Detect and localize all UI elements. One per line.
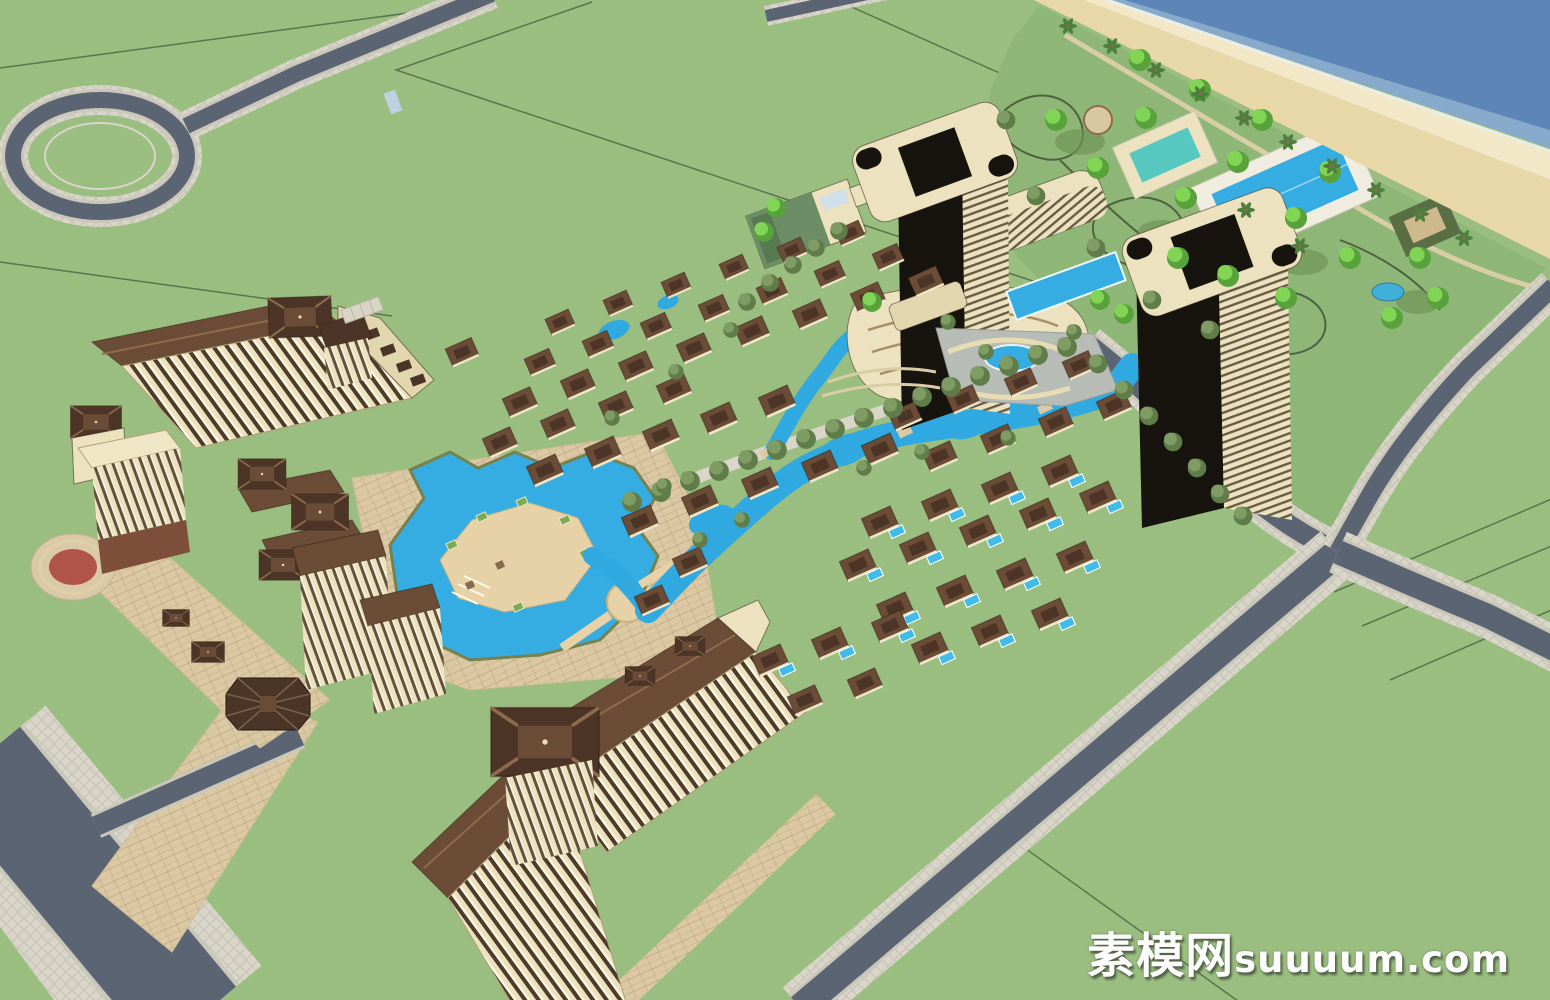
watermark: 素模网suuuum.com	[1087, 932, 1510, 980]
tree	[807, 239, 825, 257]
tree	[1129, 49, 1151, 71]
resort-masterplan-render: 素模网suuuum.com	[0, 0, 1550, 1000]
tree	[692, 532, 707, 547]
tree	[1087, 157, 1109, 179]
tree	[1115, 381, 1134, 400]
tree	[825, 419, 845, 439]
tree	[1251, 109, 1273, 131]
tree	[941, 377, 961, 397]
tree	[1089, 355, 1108, 374]
tree	[970, 366, 990, 386]
tree	[1135, 107, 1157, 129]
gate-pavilion	[192, 642, 225, 663]
tree	[622, 492, 642, 512]
tree	[1211, 485, 1230, 504]
tree	[784, 256, 802, 274]
tree	[1027, 187, 1046, 206]
tree	[862, 292, 882, 312]
tree	[738, 450, 758, 470]
tree	[668, 364, 683, 379]
garden-pavilion	[1084, 106, 1112, 134]
tree	[709, 461, 729, 481]
tree	[1188, 459, 1207, 478]
tree	[723, 322, 738, 337]
gate-pavilion	[163, 609, 190, 626]
tree	[1164, 433, 1183, 452]
tree	[680, 471, 700, 491]
tower-roof	[238, 459, 286, 489]
tree	[1285, 207, 1307, 229]
tree	[1167, 247, 1189, 269]
tree	[856, 460, 871, 475]
tree	[978, 344, 993, 359]
tree	[1140, 407, 1159, 426]
tree	[656, 478, 671, 493]
tree	[796, 429, 816, 449]
tree	[754, 222, 774, 242]
wing-cap	[675, 637, 705, 656]
tree	[914, 444, 929, 459]
watermark-domain: suuuum.com	[1234, 941, 1510, 978]
tree	[604, 410, 619, 425]
tree	[1045, 109, 1067, 131]
wing-cap	[625, 667, 655, 686]
tree	[761, 274, 779, 292]
tree	[1339, 247, 1361, 269]
render-canvas	[0, 0, 1550, 1000]
tree	[766, 198, 786, 218]
watermark-site-name: 素模网	[1087, 932, 1234, 980]
tree	[1028, 345, 1048, 365]
tree	[1201, 321, 1220, 340]
tree	[738, 293, 756, 311]
tree	[940, 314, 955, 329]
tree	[1381, 307, 1403, 329]
tree	[1409, 247, 1431, 269]
tree	[734, 512, 749, 527]
tree	[767, 440, 787, 460]
tree	[999, 356, 1019, 376]
garden-pond	[1372, 283, 1404, 301]
tree	[1217, 265, 1239, 287]
octagon-pavilion	[226, 678, 310, 730]
tree	[1000, 430, 1015, 445]
tree	[883, 398, 903, 418]
tree	[1114, 304, 1134, 324]
tree	[1227, 151, 1249, 173]
tree	[830, 222, 848, 240]
tree	[854, 408, 874, 428]
tree	[1234, 507, 1253, 526]
fountain-basin	[49, 549, 97, 585]
tree	[1427, 287, 1449, 309]
tree	[1175, 187, 1197, 209]
tree	[997, 111, 1016, 130]
tree	[1275, 287, 1297, 309]
tower-two	[1118, 183, 1306, 528]
tree	[1066, 324, 1081, 339]
tree	[912, 387, 932, 407]
tower-roof	[292, 494, 349, 530]
tree	[1087, 239, 1106, 258]
tree	[1090, 290, 1110, 310]
tree	[1143, 291, 1162, 310]
tree	[1057, 337, 1077, 357]
